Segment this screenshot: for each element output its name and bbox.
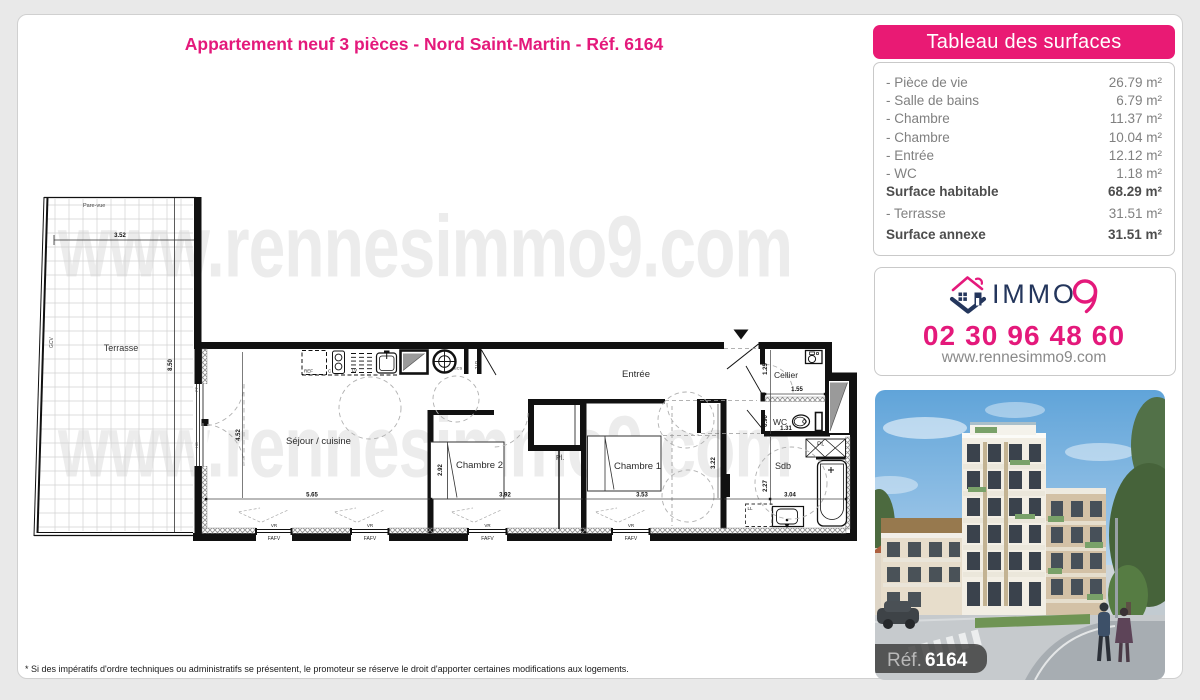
svg-text:FAFV: FAFV	[268, 536, 281, 542]
svg-text:IMMO: IMMO	[992, 279, 1077, 309]
svg-text:LV: LV	[352, 368, 357, 373]
svg-text:PF: PF	[194, 386, 199, 392]
svg-text:FAFV: FAFV	[481, 536, 494, 542]
svg-text:Chambre 1: Chambre 1	[614, 461, 661, 472]
svg-text:1.25: 1.25	[763, 363, 769, 375]
svg-text:2.92: 2.92	[438, 464, 444, 476]
svg-text:3.52: 3.52	[114, 233, 126, 239]
svg-text:Pl.: Pl.	[556, 455, 564, 462]
svg-text:3.92: 3.92	[499, 493, 511, 499]
svg-text:HG: HG	[194, 442, 199, 448]
svg-text:6164: 6164	[925, 650, 968, 671]
svg-text:GTL: GTL	[474, 361, 479, 370]
svg-text:LL: LL	[748, 506, 754, 511]
svg-text:Pl.: Pl.	[817, 441, 825, 448]
svg-text:Entrée: Entrée	[622, 369, 650, 380]
svg-text:Séjour / cuisine: Séjour / cuisine	[286, 436, 351, 447]
svg-text:VR: VR	[628, 523, 635, 528]
svg-text:VR: VR	[271, 523, 278, 528]
svg-text:FAFV: FAFV	[364, 536, 377, 542]
svg-text:0.90: 0.90	[763, 415, 769, 427]
svg-text:Pare-vue: Pare-vue	[83, 203, 105, 209]
svg-text:VR: VR	[484, 523, 491, 528]
svg-text:C: C	[328, 369, 332, 374]
svg-text:Cellier: Cellier	[774, 370, 798, 380]
svg-text:1.55: 1.55	[791, 387, 803, 393]
svg-text:VR: VR	[367, 523, 374, 528]
svg-text:Chambre 2: Chambre 2	[456, 460, 503, 471]
svg-text:8.50: 8.50	[168, 359, 174, 371]
svg-text:ECS: ECS	[454, 366, 463, 371]
svg-text:REF: REF	[304, 369, 313, 374]
svg-text:2.27: 2.27	[763, 480, 769, 492]
svg-text:3.04: 3.04	[784, 493, 796, 499]
svg-text:5.65: 5.65	[306, 493, 318, 499]
svg-text:WC: WC	[773, 417, 787, 427]
svg-text:Réf.: Réf.	[887, 650, 922, 671]
svg-text:3.53: 3.53	[636, 493, 648, 499]
svg-text:Terrasse: Terrasse	[104, 343, 139, 353]
svg-text:GCV: GCV	[49, 337, 55, 349]
svg-text:3.22: 3.22	[711, 457, 717, 469]
svg-text:FAFV: FAFV	[625, 536, 638, 542]
svg-text:Sdb: Sdb	[775, 461, 791, 471]
svg-text:4.52: 4.52	[236, 429, 242, 441]
